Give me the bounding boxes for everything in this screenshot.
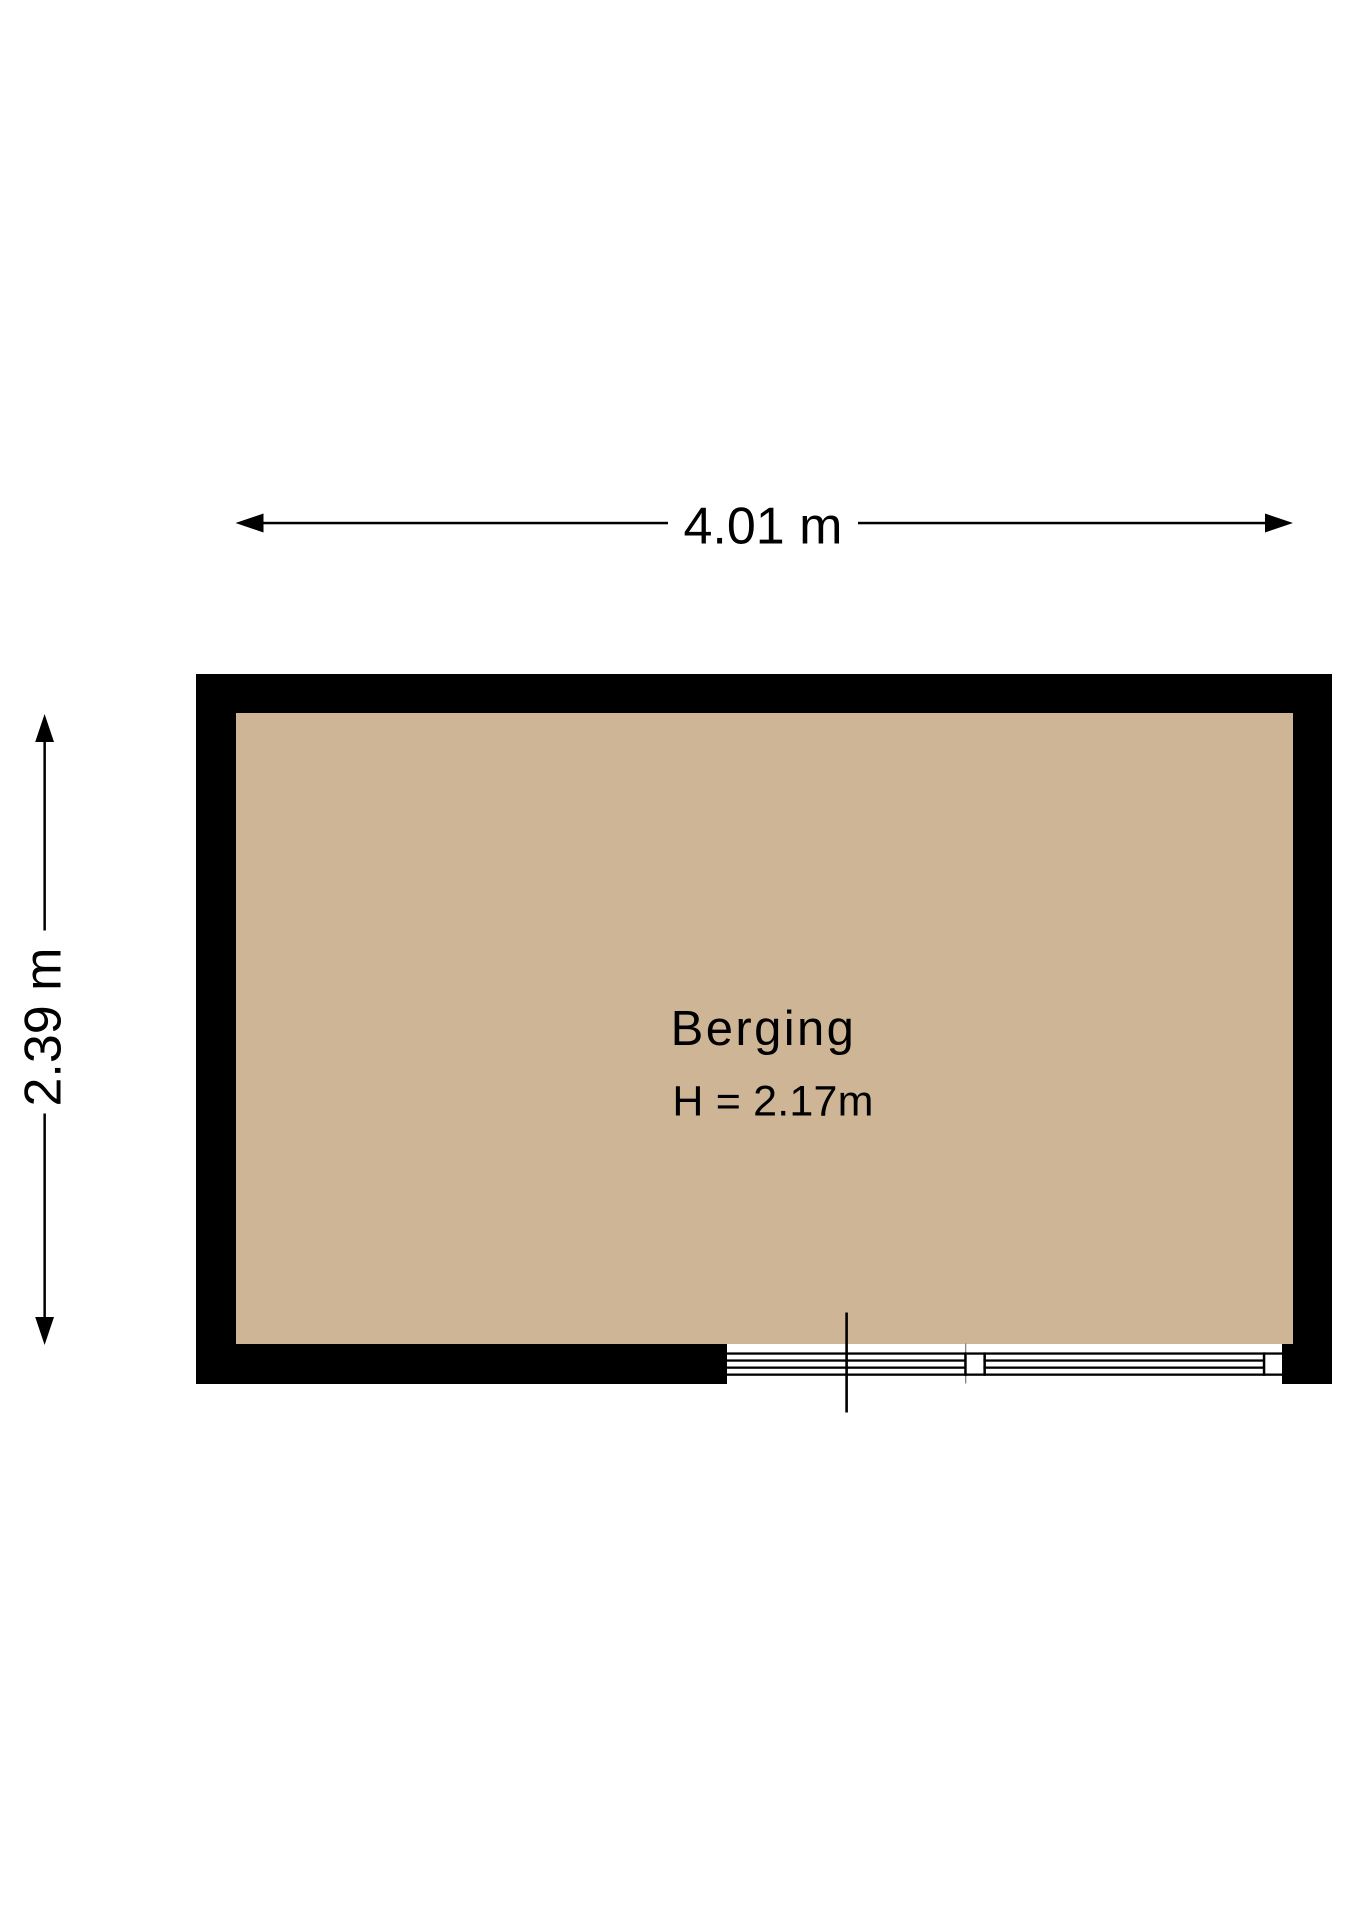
- svg-text:4.01 m: 4.01 m: [684, 498, 843, 556]
- svg-text:2.39 m: 2.39 m: [15, 948, 73, 1107]
- svg-text:Berging: Berging: [671, 1002, 857, 1056]
- svg-text:H = 2.17m: H = 2.17m: [672, 1078, 873, 1126]
